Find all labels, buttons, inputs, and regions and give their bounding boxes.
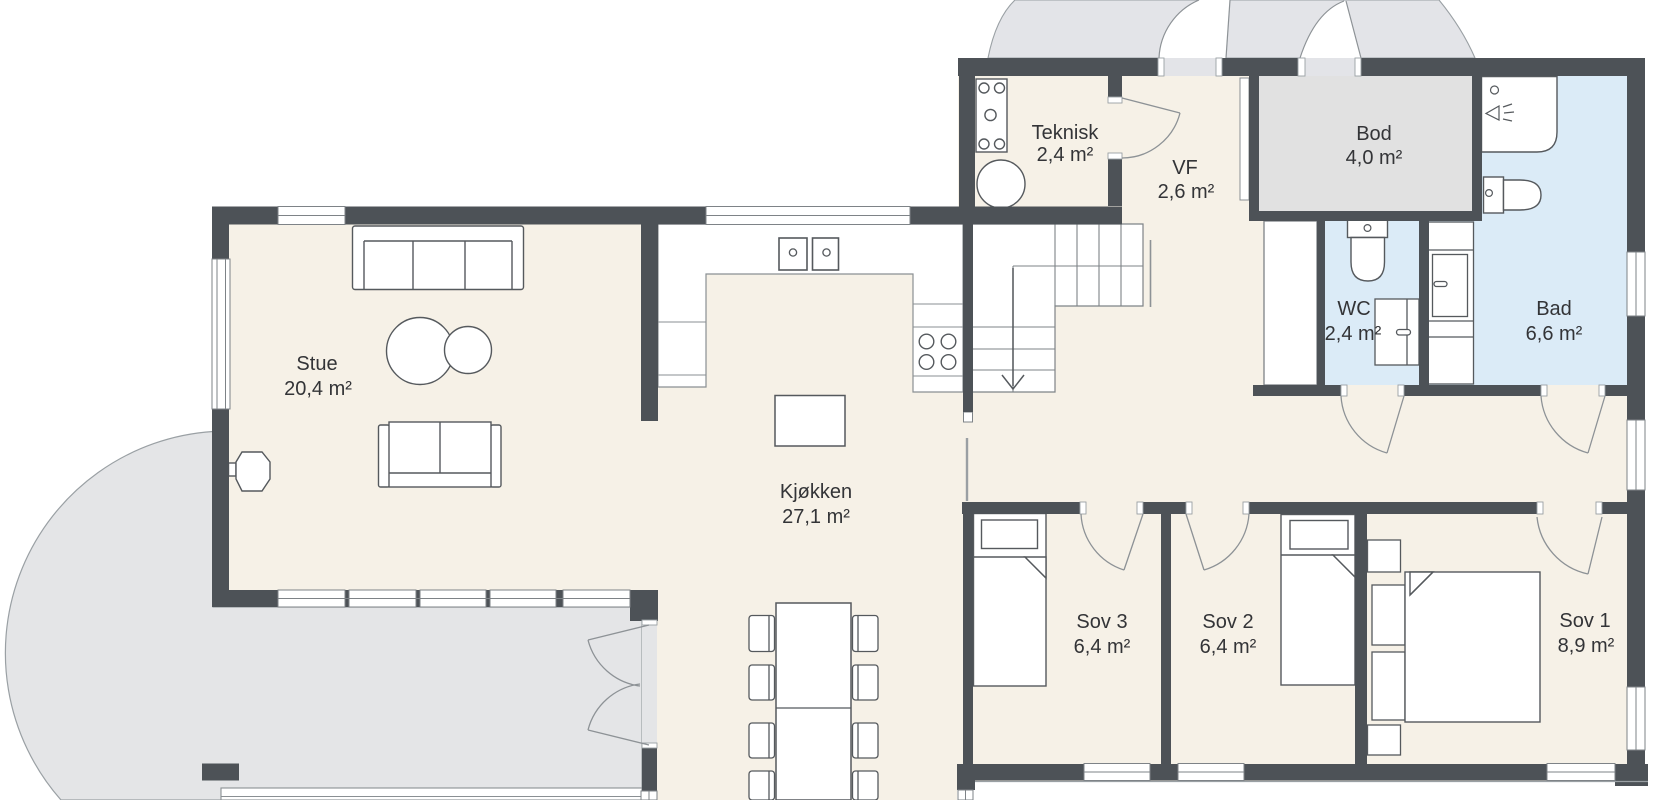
svg-text:Sov 2: Sov 2 <box>1202 611 1253 633</box>
svg-text:Kjøkken: Kjøkken <box>780 481 852 503</box>
svg-text:27,1 m²: 27,1 m² <box>782 506 850 528</box>
svg-text:Sov 3: Sov 3 <box>1076 611 1127 633</box>
svg-text:Teknisk: Teknisk <box>1032 122 1100 144</box>
svg-text:Stue: Stue <box>296 353 337 375</box>
svg-text:6,4 m²: 6,4 m² <box>1200 636 1257 658</box>
svg-text:8,9 m²: 8,9 m² <box>1558 635 1615 657</box>
svg-text:2,6 m²: 2,6 m² <box>1158 181 1215 203</box>
svg-text:6,6 m²: 6,6 m² <box>1526 323 1583 345</box>
svg-text:Sov 1: Sov 1 <box>1559 610 1610 632</box>
svg-text:Bad: Bad <box>1536 298 1572 320</box>
svg-text:Bod: Bod <box>1356 123 1392 145</box>
svg-text:2,4 m²: 2,4 m² <box>1037 144 1094 166</box>
svg-text:4,0 m²: 4,0 m² <box>1346 147 1403 169</box>
svg-text:20,4 m²: 20,4 m² <box>284 378 352 400</box>
svg-text:VF: VF <box>1172 157 1198 179</box>
svg-text:6,4 m²: 6,4 m² <box>1074 636 1131 658</box>
svg-text:2,4 m²: 2,4 m² <box>1325 323 1382 345</box>
svg-text:WC: WC <box>1337 298 1370 320</box>
